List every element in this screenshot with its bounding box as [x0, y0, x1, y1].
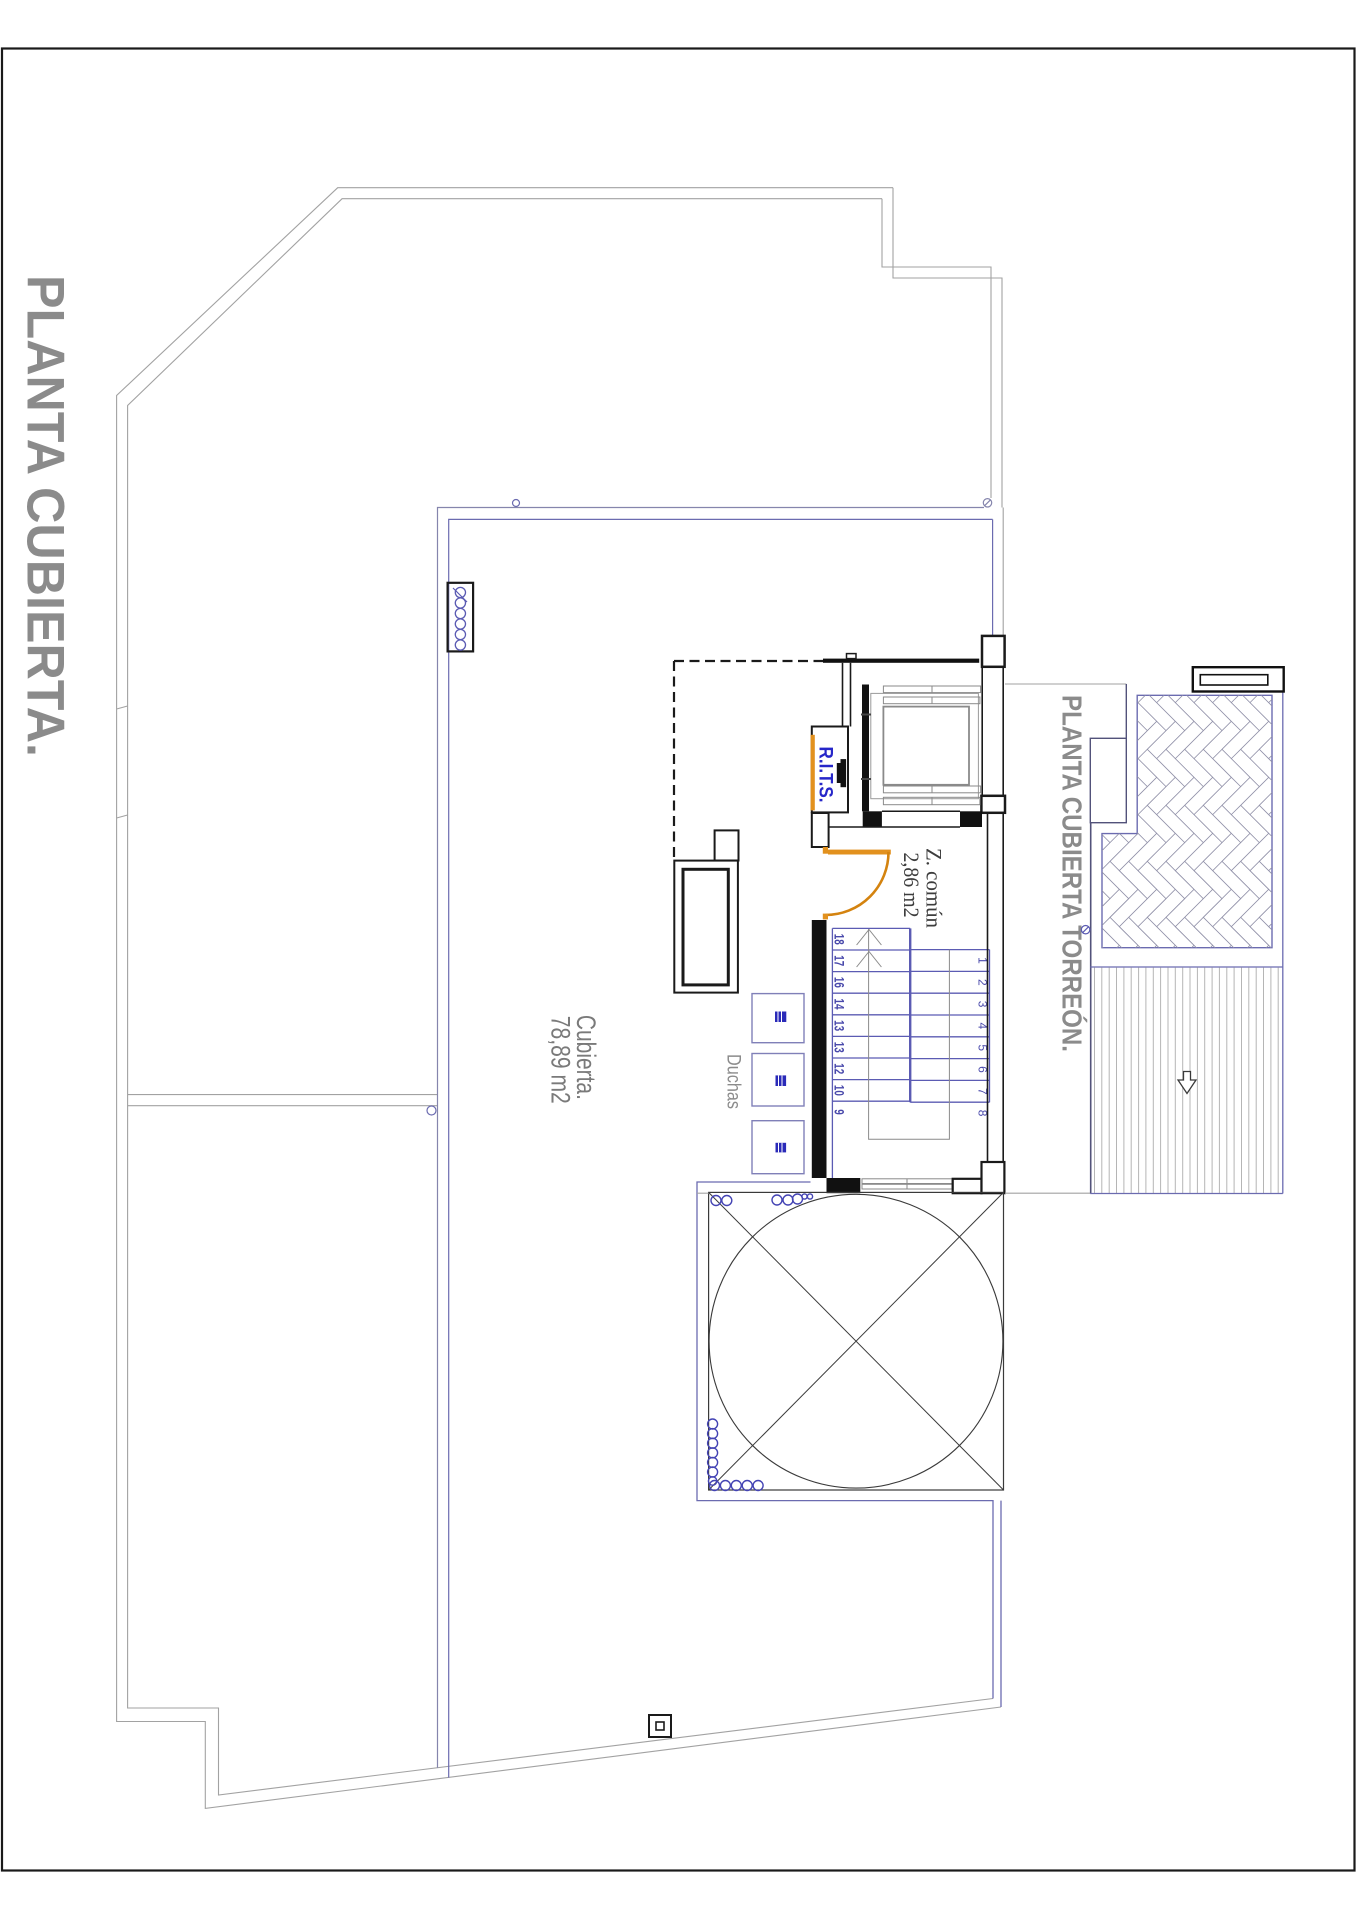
svg-text:13: 13: [832, 1042, 847, 1053]
svg-text:2,86 m2: 2,86 m2: [899, 853, 924, 918]
svg-text:9: 9: [832, 1109, 847, 1115]
svg-text:17: 17: [832, 955, 847, 966]
svg-text:12: 12: [832, 1063, 847, 1074]
svg-text:16: 16: [832, 977, 847, 988]
svg-text:18: 18: [832, 934, 847, 945]
svg-text:13: 13: [832, 1020, 847, 1031]
svg-text:R.I.T.S.: R.I.T.S.: [815, 747, 836, 803]
svg-text:Duchas: Duchas: [723, 1054, 745, 1109]
svg-text:Z. común: Z. común: [922, 848, 947, 928]
svg-text:14: 14: [832, 999, 847, 1010]
svg-text:78,89 m2: 78,89 m2: [546, 1016, 576, 1104]
svg-text:PLANTA CUBIERTA.: PLANTA CUBIERTA.: [16, 275, 75, 757]
svg-text:10: 10: [832, 1085, 847, 1096]
svg-text:PLANTA CUBIERTA TORREÓN.: PLANTA CUBIERTA TORREÓN.: [1057, 695, 1088, 1052]
